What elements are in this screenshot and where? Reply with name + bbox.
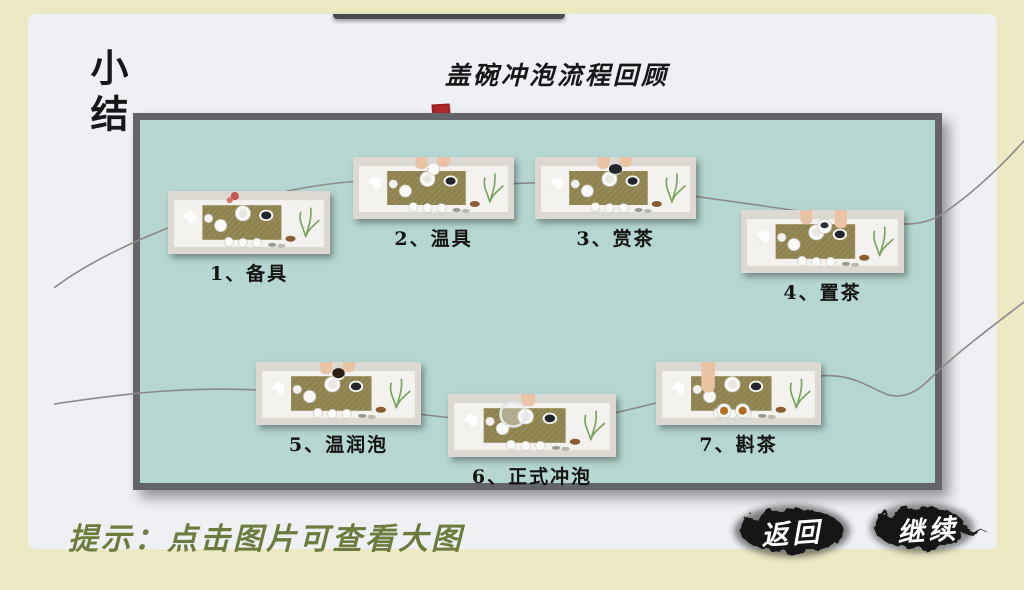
top-edge-bar xyxy=(333,14,565,19)
step-label-7: 7、斟茶 xyxy=(636,430,841,457)
step-label-2: 2、温具 xyxy=(333,224,534,251)
back-button-label: 返回 xyxy=(729,497,855,565)
page-title: 盖碗冲泡流程回顾 xyxy=(445,56,669,92)
continue-button-label: 继续 xyxy=(864,495,992,562)
back-button[interactable]: 返回 xyxy=(731,501,853,561)
step-photo-2[interactable]: 2、温具 xyxy=(353,157,514,219)
step-photo-3[interactable]: 3、赏茶 xyxy=(535,157,696,219)
step-label-4: 4、置茶 xyxy=(721,278,924,305)
step-photo-1[interactable]: 1、备具 xyxy=(168,191,330,254)
slide-header: 盖碗冲泡流程回顾 xyxy=(28,56,1024,90)
summary-slide: 小结 盖碗冲泡流程回顾 1、备具 2、温具 3 xyxy=(0,0,1024,576)
tip-text: 提示：点击图片可查看大图 xyxy=(68,514,464,558)
step-label-1: 1、备具 xyxy=(148,259,350,286)
step-photo-6[interactable]: 6、正式冲泡 xyxy=(448,394,616,457)
step-label-3: 3、赏茶 xyxy=(515,224,716,251)
step-photo-5[interactable]: 5、温润泡 xyxy=(256,362,421,425)
step-photo-4[interactable]: 4、置茶 xyxy=(741,210,904,273)
step-label-6: 6、正式冲泡 xyxy=(428,462,636,489)
step-photo-7[interactable]: 7、斟茶 xyxy=(656,362,821,425)
continue-button[interactable]: 继续 xyxy=(866,499,990,557)
slide-card: 小结 盖碗冲泡流程回顾 1、备具 2、温具 3 xyxy=(28,14,997,549)
step-label-5: 5、温润泡 xyxy=(236,430,441,457)
